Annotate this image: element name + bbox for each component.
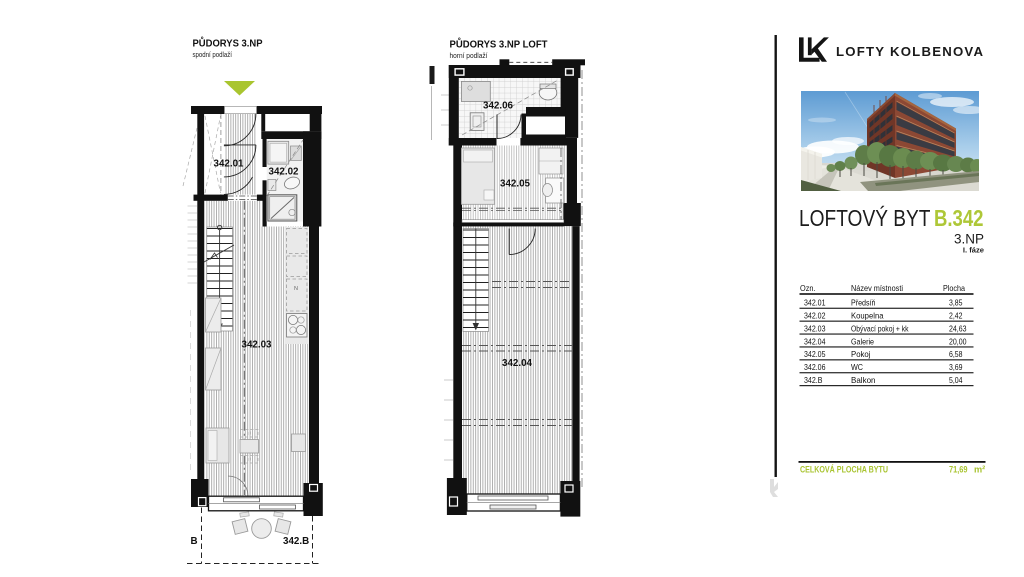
svg-text:342.B: 342.B [804,375,823,385]
svg-text:24,63: 24,63 [949,323,967,333]
svg-text:LOFTY KOLBENOVA: LOFTY KOLBENOVA [836,44,983,59]
svg-text:342.01: 342.01 [214,159,245,170]
svg-text:Předsíň: Předsíň [851,298,876,308]
svg-text:342.05: 342.05 [500,179,531,190]
svg-text:B: B [191,536,198,547]
svg-text:WC: WC [851,362,863,372]
svg-text:342.03: 342.03 [804,323,826,333]
svg-text:Plocha: Plocha [943,283,965,293]
svg-text:342.06: 342.06 [804,362,826,372]
svg-text:Balkon: Balkon [851,375,876,385]
svg-text:3.NP: 3.NP [954,232,984,247]
svg-text:Galerie: Galerie [851,336,874,346]
svg-text:I. fáze: I. fáze [963,246,984,255]
svg-text:horní podlaží: horní podlaží [450,51,489,60]
svg-text:Název místnosti: Název místnosti [851,283,903,293]
svg-text:342.05: 342.05 [804,349,826,359]
svg-text:5,04: 5,04 [949,375,963,385]
svg-text:3,85: 3,85 [949,298,963,308]
svg-text:342.06: 342.06 [483,101,514,112]
svg-text:Obývací pokoj + kk: Obývací pokoj + kk [851,323,909,333]
svg-text:Ozn.: Ozn. [800,283,816,293]
svg-text:342.04: 342.04 [804,336,826,346]
svg-text:342.04: 342.04 [502,358,533,369]
svg-text:71,69: 71,69 [949,465,968,475]
svg-text:m²: m² [974,465,985,475]
svg-text:20,00: 20,00 [949,336,967,346]
svg-text:3,69: 3,69 [949,362,963,372]
svg-text:LOFTOVÝ BYT: LOFTOVÝ BYT [799,205,931,231]
svg-text:342.02: 342.02 [804,311,826,321]
svg-text:CELKOVÁ PLOCHA BYTU: CELKOVÁ PLOCHA BYTU [800,464,888,475]
svg-text:342.02: 342.02 [269,167,300,178]
svg-text:342.03: 342.03 [242,340,273,351]
svg-text:PŮDORYS 3.NP LOFT: PŮDORYS 3.NP LOFT [450,37,549,51]
svg-text:B.342: B.342 [934,205,984,231]
svg-text:PŮDORYS 3.NP: PŮDORYS 3.NP [193,36,263,50]
svg-text:342.01: 342.01 [804,298,826,308]
svg-text:spodní podlaží: spodní podlaží [193,50,233,59]
svg-text:N: N [294,286,298,292]
svg-text:6,58: 6,58 [949,349,963,359]
svg-text:2,42: 2,42 [949,311,963,321]
svg-text:Koupelna: Koupelna [851,311,884,321]
svg-text:Pokoj: Pokoj [851,349,871,359]
svg-text:342.B: 342.B [283,536,309,547]
